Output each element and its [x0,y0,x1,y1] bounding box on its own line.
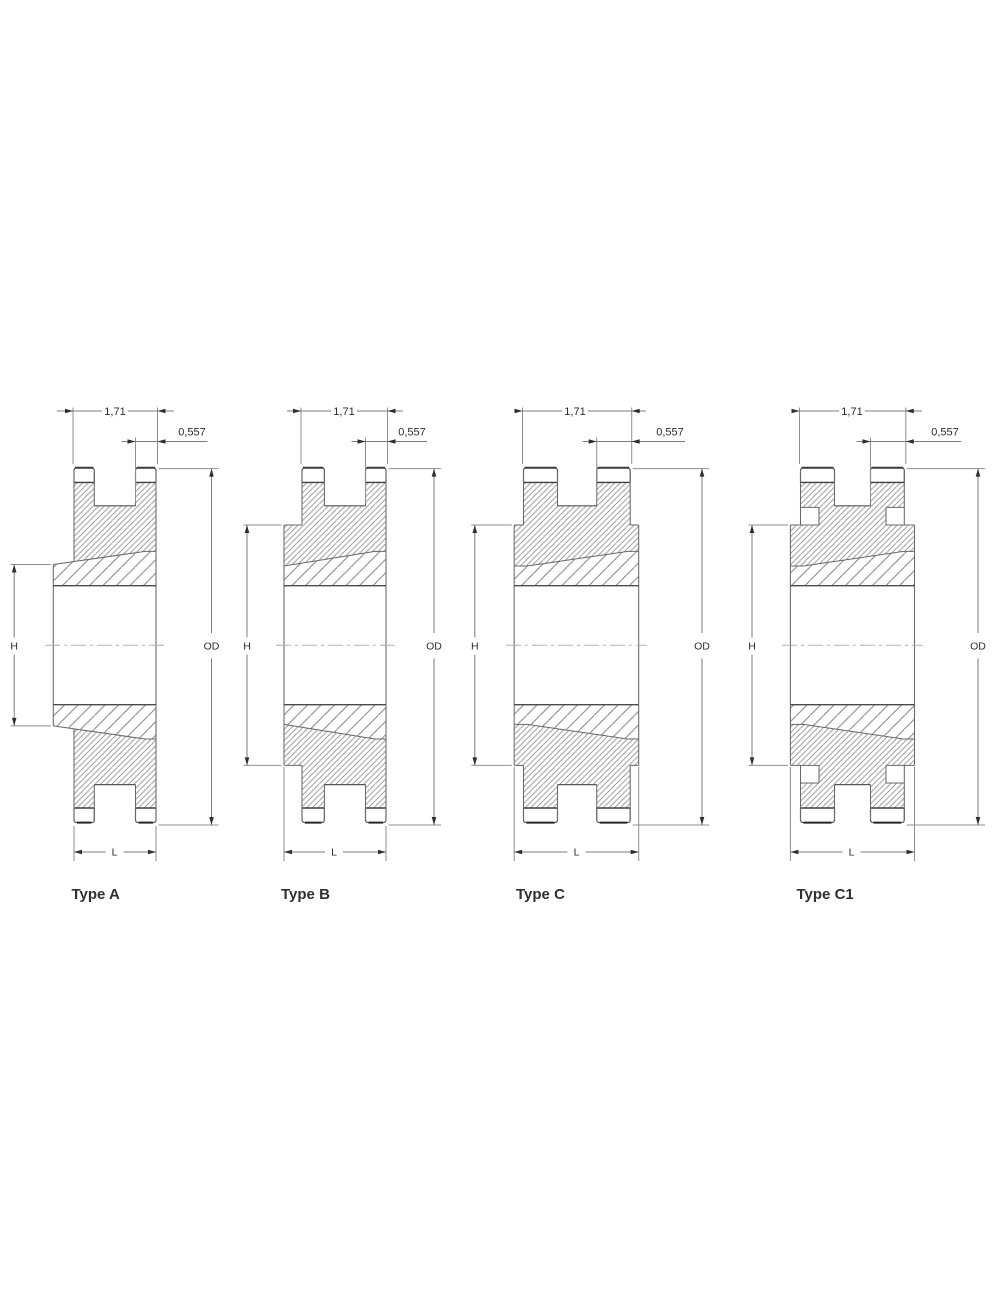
svg-text:L: L [849,847,855,859]
svg-text:Type C: Type C [516,886,565,903]
svg-text:H: H [471,641,479,653]
svg-text:1,71: 1,71 [841,406,862,418]
svg-text:1,71: 1,71 [104,406,125,418]
svg-text:OD: OD [204,641,220,653]
svg-text:OD: OD [970,641,986,653]
svg-text:0,557: 0,557 [656,427,684,439]
svg-text:L: L [112,847,118,859]
svg-text:L: L [331,847,337,859]
svg-text:0,557: 0,557 [178,427,206,439]
svg-text:H: H [10,641,18,653]
svg-text:Type B: Type B [281,886,330,903]
svg-text:H: H [748,641,756,653]
svg-text:H: H [243,641,251,653]
svg-text:OD: OD [694,641,710,653]
svg-text:Type A: Type A [72,886,121,903]
svg-text:OD: OD [426,641,442,653]
svg-text:1,71: 1,71 [564,406,585,418]
svg-text:Type C1: Type C1 [797,886,854,903]
svg-text:0,557: 0,557 [398,427,426,439]
svg-text:L: L [574,847,580,859]
svg-text:0,557: 0,557 [931,427,959,439]
svg-text:1,71: 1,71 [333,406,354,418]
